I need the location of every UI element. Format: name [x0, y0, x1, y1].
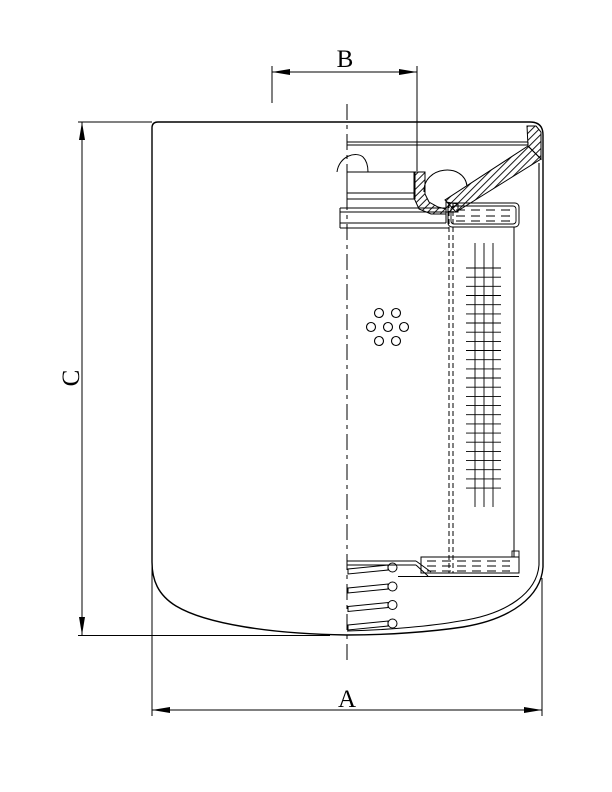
top-end-cap-adhesive [456, 210, 512, 221]
filter-element [398, 203, 519, 577]
dimension-b-label: B [337, 46, 354, 73]
spring-seat-plate [347, 561, 431, 576]
arrowhead [272, 69, 290, 75]
baffle-plate-hatch [445, 146, 541, 212]
anti-drainback-dome [337, 155, 368, 172]
dimension-c: C [58, 122, 330, 636]
arrowhead [79, 617, 85, 635]
media-grid [466, 268, 501, 488]
arrowhead [524, 707, 542, 713]
threaded-port [337, 155, 467, 199]
filter-media [466, 243, 501, 507]
technical-drawing: B C A [0, 0, 612, 792]
bypass-valve-dome [424, 170, 467, 192]
bottom-end-cap-adhesive [427, 561, 510, 571]
drawing-page: B C A [0, 0, 612, 792]
dimension-c-label: C [58, 370, 85, 387]
dimension-a-label: A [338, 686, 356, 713]
arrowhead [79, 122, 85, 140]
perforation-holes [367, 309, 409, 346]
arrowhead [399, 69, 417, 75]
center-tube [449, 203, 453, 573]
coil-spring [348, 563, 397, 630]
dimension-b: B [272, 46, 417, 171]
arrowhead [152, 707, 170, 713]
